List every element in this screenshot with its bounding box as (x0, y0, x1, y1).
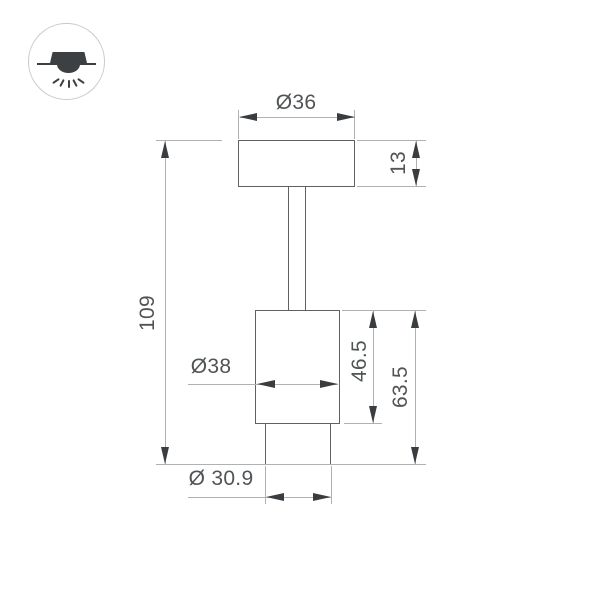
dim-head-height: 63.5 (390, 352, 412, 422)
arrowhead (161, 447, 169, 464)
icon-light-ray (72, 79, 78, 87)
arrowhead (412, 169, 420, 186)
dim-front-diameter: Ø 30.9 (183, 468, 259, 490)
dim-top-diameter: Ø36 (256, 92, 336, 114)
dimension-line (165, 141, 166, 464)
arrowhead (239, 113, 257, 121)
icon-lamp-dome (57, 64, 80, 73)
extension-line (331, 466, 332, 504)
dim-body-height: 46.5 (349, 326, 371, 396)
ceiling-plate-outline (238, 140, 355, 187)
arrowhead (320, 380, 338, 388)
ceiling-light-icon (28, 23, 105, 100)
front-ring-outline (265, 424, 331, 465)
dim-plate-thickness: 13 (388, 128, 410, 198)
arrowhead (257, 380, 275, 388)
icon-light-ray (68, 80, 70, 88)
icon-light-ray (52, 78, 60, 84)
body-outline (255, 310, 340, 424)
dim-overall-height: 109 (137, 278, 159, 348)
icon-light-ray (77, 78, 85, 84)
icon-light-ray (59, 79, 65, 87)
arrowhead (412, 141, 420, 158)
arrowhead (337, 113, 355, 121)
arrowhead (411, 311, 419, 328)
extension-line (344, 423, 382, 424)
arrowhead (411, 447, 419, 464)
stem-outline (288, 186, 306, 312)
dimension-line (188, 497, 331, 498)
dimension-line (415, 311, 416, 464)
arrowhead (313, 493, 331, 501)
dim-body-diameter: Ø38 (183, 356, 239, 378)
arrowhead (266, 493, 284, 501)
extension-line (156, 464, 426, 465)
arrowhead (161, 141, 169, 158)
dimension-drawing-page: { "type_icon": {"name": "ceiling-light-i… (0, 0, 600, 600)
icon-lamp-housing (50, 52, 87, 63)
arrowhead (369, 406, 377, 423)
